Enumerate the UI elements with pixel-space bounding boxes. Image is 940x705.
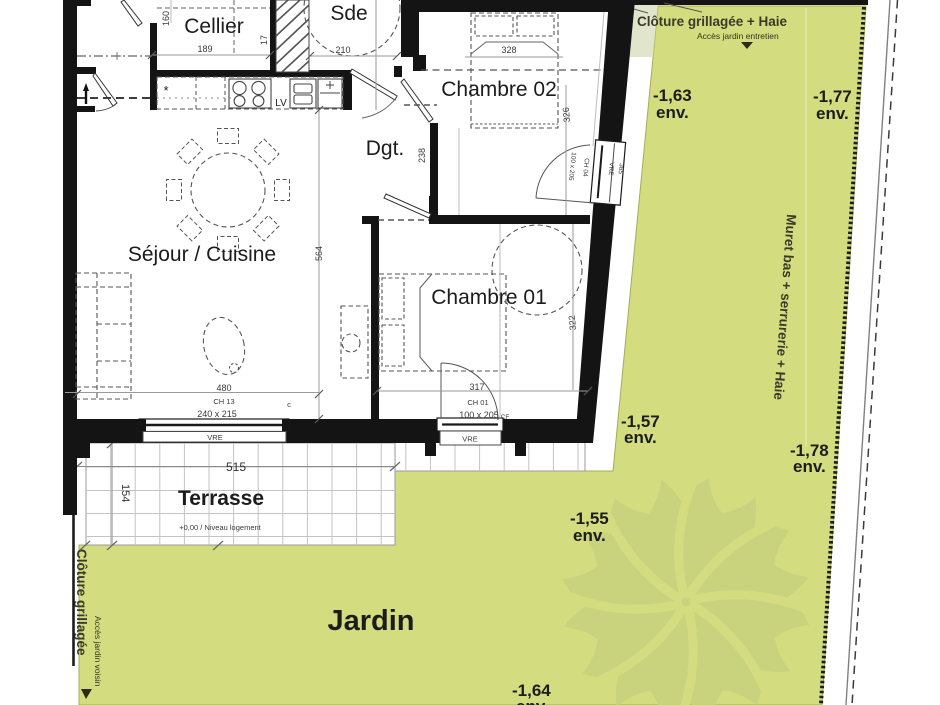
- svg-text:CH 13: CH 13: [213, 397, 234, 406]
- svg-text:env.: env.: [793, 457, 826, 476]
- svg-text:160: 160: [161, 11, 171, 26]
- svg-text:Clôture grillagée: Clôture grillagée: [74, 549, 89, 656]
- svg-text:154: 154: [119, 484, 131, 502]
- svg-text:322: 322: [567, 315, 578, 331]
- svg-text:317: 317: [469, 382, 484, 392]
- svg-text:env.: env.: [516, 697, 549, 705]
- svg-text:Sde: Sde: [330, 2, 367, 25]
- svg-text:326: 326: [561, 107, 572, 123]
- svg-text:Dgt.: Dgt.: [366, 137, 405, 160]
- svg-text:238: 238: [417, 148, 427, 163]
- svg-text:CF: CF: [501, 414, 510, 421]
- svg-text:Chambre 02: Chambre 02: [441, 78, 557, 101]
- svg-text:Chambre 01: Chambre 01: [431, 286, 547, 309]
- svg-text:328: 328: [501, 45, 516, 55]
- svg-text:189: 189: [197, 44, 212, 54]
- svg-text:env.: env.: [573, 526, 606, 545]
- svg-text:LV: LV: [275, 98, 287, 109]
- svg-text:515: 515: [226, 460, 246, 474]
- svg-text:Séjour / Cuisine: Séjour / Cuisine: [128, 243, 276, 266]
- svg-text:480: 480: [216, 383, 231, 393]
- svg-text:+0,00 / Niveau logement: +0,00 / Niveau logement: [179, 523, 261, 532]
- svg-text:c: c: [287, 400, 291, 409]
- svg-text:VRE: VRE: [607, 162, 615, 177]
- svg-text:Cellier: Cellier: [184, 15, 244, 38]
- svg-text:CH 01: CH 01: [467, 398, 488, 407]
- svg-text:210: 210: [335, 45, 350, 55]
- svg-text:env.: env.: [656, 103, 689, 122]
- svg-text:Accès jardin voisin: Accès jardin voisin: [93, 616, 103, 687]
- svg-text:100 x 205: 100 x 205: [459, 410, 499, 420]
- svg-text:Jardin: Jardin: [327, 605, 414, 637]
- svg-text:Terrasse: Terrasse: [178, 487, 264, 510]
- svg-text:564: 564: [314, 246, 324, 261]
- svg-text:VRE: VRE: [207, 433, 222, 442]
- svg-text:VRE: VRE: [462, 435, 477, 444]
- svg-text:365: 365: [616, 163, 624, 175]
- svg-text:17: 17: [259, 35, 269, 45]
- svg-text:*: *: [163, 83, 168, 98]
- svg-text:Accès jardin entretien: Accès jardin entretien: [697, 31, 779, 41]
- svg-text:env.: env.: [816, 104, 849, 123]
- svg-text:Clôture grillagée + Haie: Clôture grillagée + Haie: [637, 14, 787, 29]
- svg-text:240 x 215: 240 x 215: [197, 409, 237, 419]
- svg-text:env.: env.: [624, 428, 657, 447]
